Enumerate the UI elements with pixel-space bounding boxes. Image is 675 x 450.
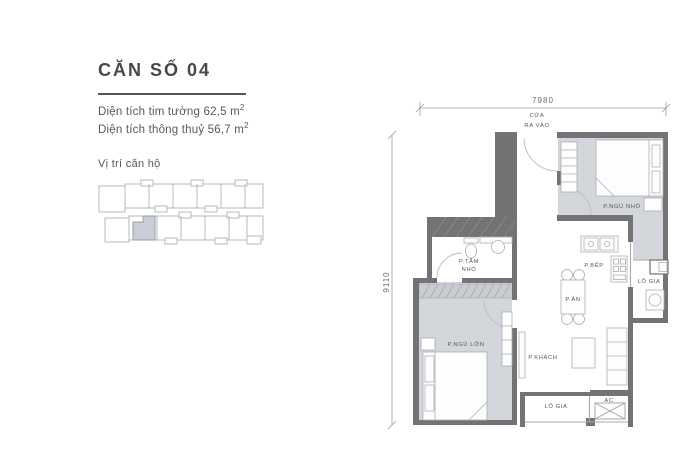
label-bathroom-1: P.TẮM [459,257,479,265]
kitchen-counter [581,236,618,252]
building-key-plan [95,176,267,248]
washing-machine [646,290,664,310]
keyplan-block [105,218,129,242]
small-bedroom-bed [596,140,663,196]
label-master-bedroom: P.NGỦ LỚN [447,341,484,348]
master-bed [423,352,487,420]
keyplan-block [99,186,125,212]
wardrobe-strip [419,284,513,298]
tv-console [519,332,525,378]
loggia-ac-box [650,260,668,274]
area-gross-line: Diện tích tim tường 62,5 m2 [98,103,245,118]
area-gross-text: Diện tích tim tường 62,5 m [98,106,240,118]
kitchen-stove [611,256,627,282]
coffee-table [572,338,595,368]
entrance-door-arc [524,138,557,171]
small-bedroom-nightstand [644,198,662,211]
area-gross-sup: 2 [240,103,245,112]
label-ac: AC [604,398,613,404]
area-net-text: Diện tích thông thuỷ 56,7 m [98,124,244,136]
toilet-bowl [466,244,477,258]
ac-unit-box [595,403,625,419]
label-living: P.KHÁCH [528,354,557,361]
dimension-height-label: 9110 [382,271,391,292]
toilet-tank [464,238,478,243]
sofa [607,328,627,385]
unit-title: CĂN SỐ 04 [98,60,211,81]
apartment-floorplan-page: CĂN SỐ 04 Diện tích tim tường 62,5 m2 Di… [0,0,675,450]
area-net-line: Diện tích thông thuỷ 56,7 m2 [98,121,249,136]
label-bathroom-2: NHỎ [462,266,477,273]
label-loggia-right: LÔ GIA [638,278,661,285]
bathroom-door-arc [437,253,462,278]
label-dining: P.ĂN [565,296,580,303]
label-entrance-2: RA VÀO [524,122,549,129]
title-underline [98,93,246,95]
label-kitchen: P.BẾP [584,262,603,269]
bathroom-fixtures [464,237,512,258]
unit-location-label: Vị trí căn hộ [98,158,161,170]
label-entrance-1: CỬA [530,112,545,119]
dimension-width-label: 7980 [532,96,554,105]
master-dresser [502,312,512,366]
label-small-bedroom: P.NGỦ NHỎ [603,203,641,210]
keyplan-row-top [125,184,263,208]
small-bedroom-wardrobe [561,142,577,192]
area-net-sup: 2 [244,121,249,130]
master-nightstand [421,338,435,350]
label-loggia-bottom: LÔ GIA [545,403,568,410]
bathroom-sink [492,241,505,254]
floor-plan-drawing: 7980 9110 CỬA RA VÀO P.NGỦ NHỎ P.TẮM NHỎ… [382,90,674,440]
